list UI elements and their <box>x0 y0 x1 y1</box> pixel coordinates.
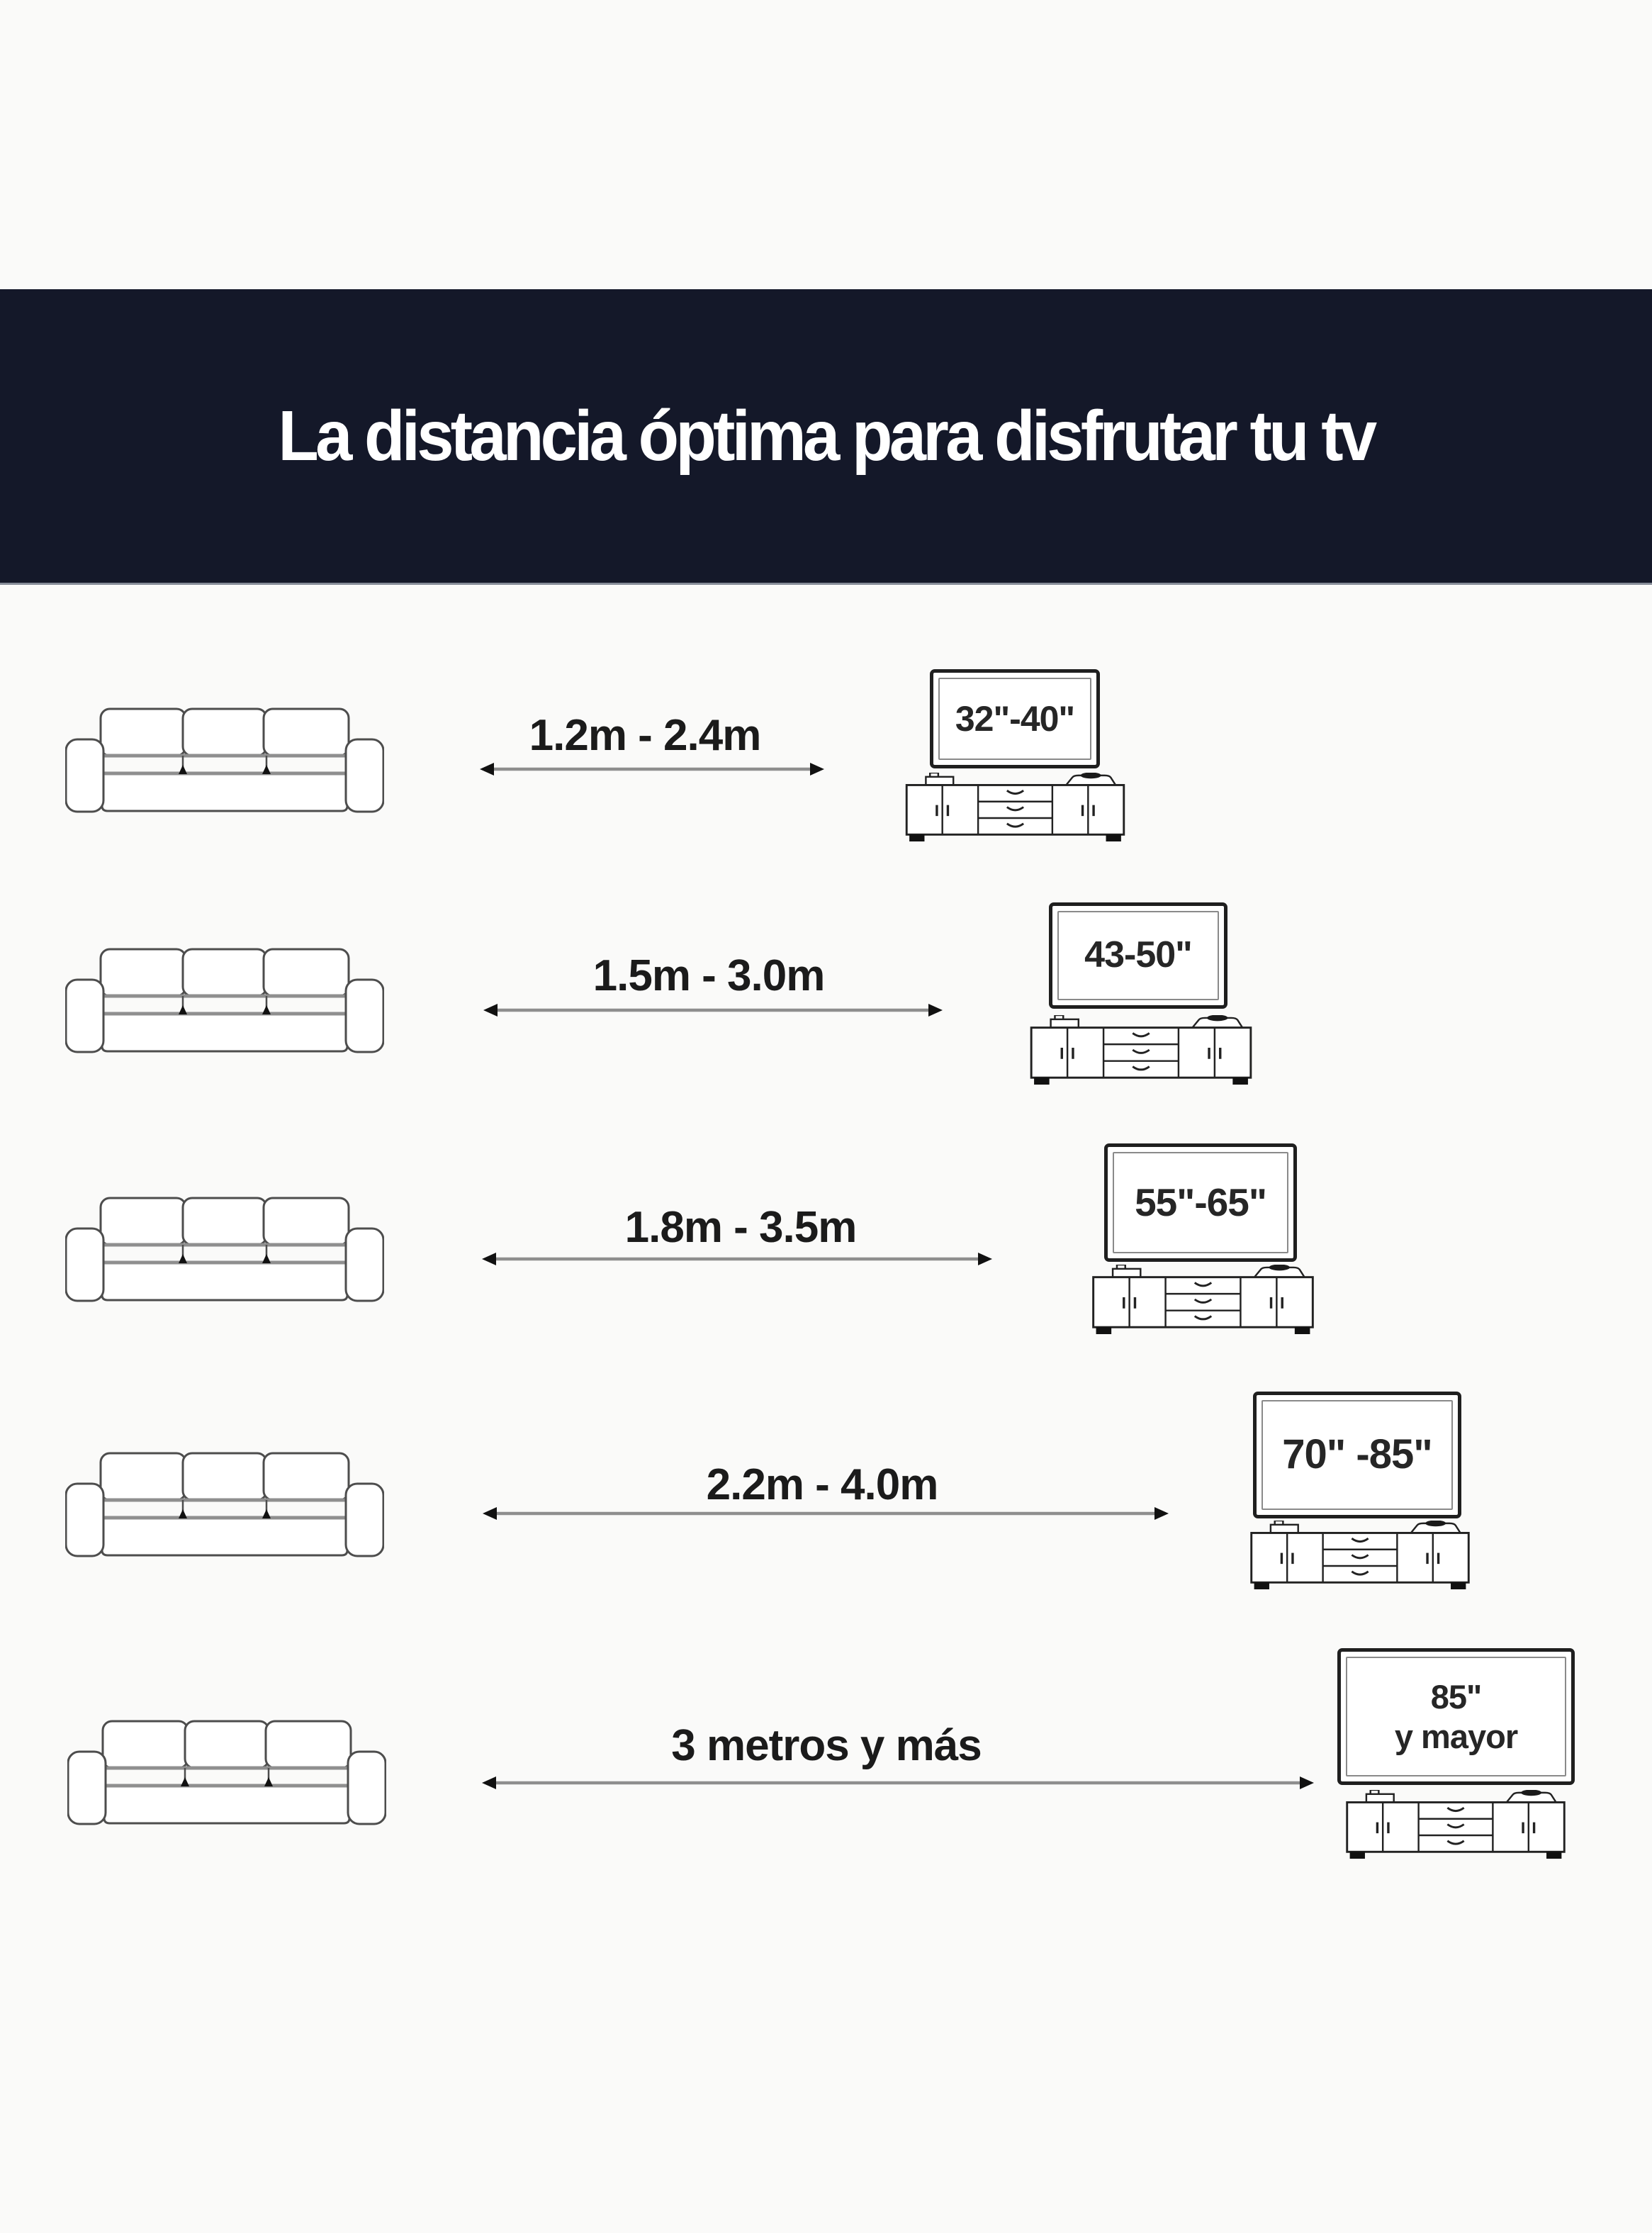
tv-size-label: 32"-40" <box>955 698 1074 740</box>
tv-stand-icon <box>1091 1265 1315 1334</box>
tv-screen: 85" y mayor <box>1337 1648 1575 1785</box>
distance-label: 1.8m - 3.5m <box>556 1202 925 1253</box>
distance-label: 1.5m - 3.0m <box>524 951 893 1001</box>
distance-label: 2.2m - 4.0m <box>638 1460 1006 1510</box>
sofa-icon <box>67 1719 386 1825</box>
tv-size-label: 43-50" <box>1084 934 1192 977</box>
header-banner: La distancia óptima para disfrutar tu tv <box>0 289 1652 585</box>
distance-label: 3 metros y más <box>621 1720 1032 1771</box>
double-arrow-icon <box>482 1001 944 1019</box>
tv-screen: 55"-65" <box>1104 1143 1297 1262</box>
sofa-icon <box>65 707 384 813</box>
double-arrow-icon <box>481 1250 994 1268</box>
sofa-icon <box>65 1451 384 1557</box>
sofa-icon <box>65 1196 384 1302</box>
tv-stand-icon <box>1249 1521 1471 1589</box>
tv-screen: 70" -85" <box>1253 1392 1461 1518</box>
tv-screen: 43-50" <box>1049 902 1227 1009</box>
tv-screen-inner: 32"-40" <box>938 678 1091 760</box>
double-arrow-icon <box>481 1504 1170 1523</box>
tv-size-label: 70" -85" <box>1282 1431 1432 1479</box>
tv-stand-icon <box>1345 1790 1566 1859</box>
tv-size-label: 55"-65" <box>1135 1180 1266 1226</box>
tv-stand-icon <box>1030 1015 1252 1085</box>
tv-screen-inner: 55"-65" <box>1113 1152 1288 1253</box>
tv-size-label: 85" y mayor <box>1395 1677 1517 1756</box>
double-arrow-icon <box>478 760 826 778</box>
tv-screen-inner: 85" y mayor <box>1346 1657 1566 1776</box>
tv-stand-icon <box>905 773 1125 841</box>
double-arrow-icon <box>481 1774 1315 1792</box>
tv-screen-inner: 70" -85" <box>1262 1400 1453 1510</box>
tv-screen-inner: 43-50" <box>1057 911 1219 1000</box>
distance-label: 1.2m - 2.4m <box>461 710 829 761</box>
infographic-canvas: La distancia óptima para disfrutar tu tv… <box>0 0 1652 2233</box>
sofa-icon <box>65 947 384 1053</box>
page-title: La distancia óptima para disfrutar tu tv <box>278 396 1373 477</box>
tv-screen: 32"-40" <box>930 669 1100 768</box>
